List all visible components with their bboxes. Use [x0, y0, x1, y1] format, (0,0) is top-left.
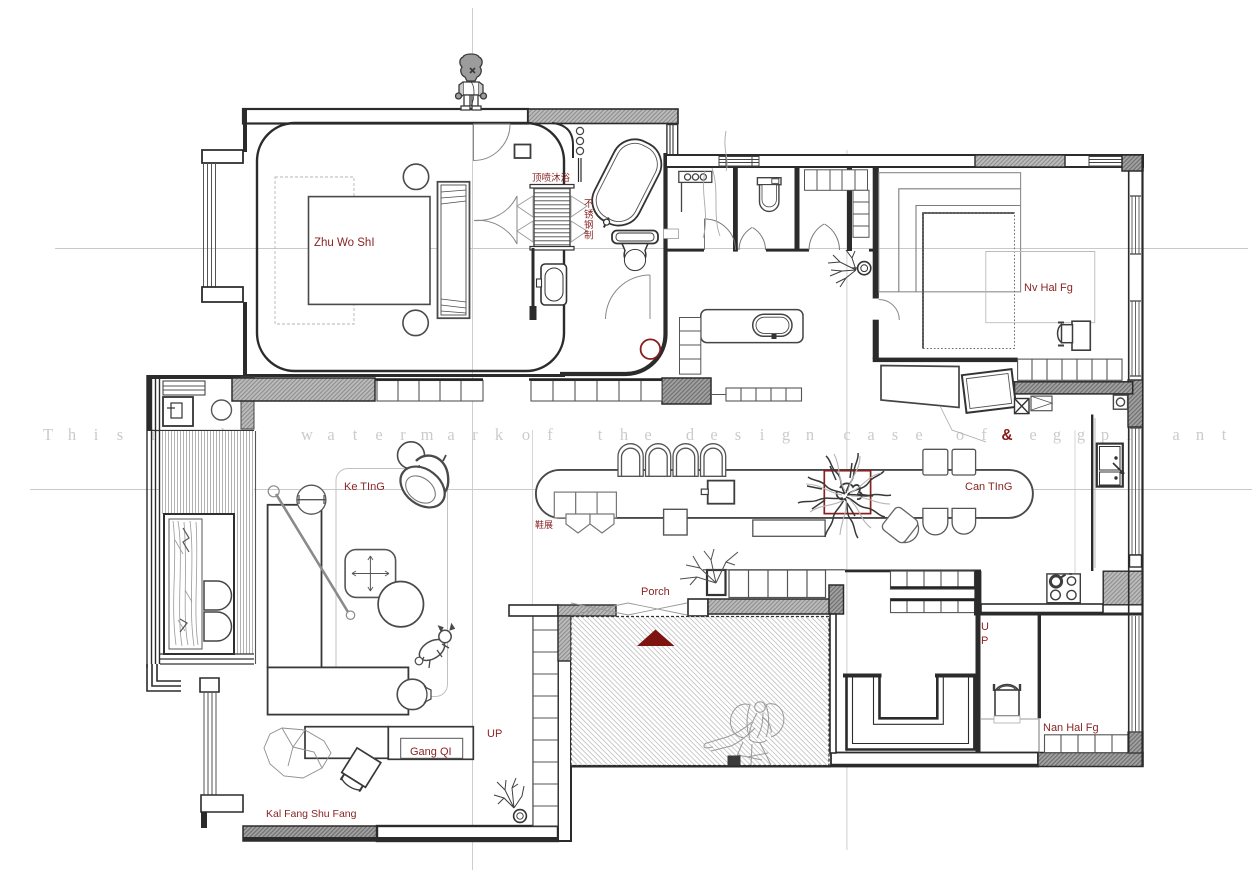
svg-text:&: &	[1001, 427, 1012, 444]
svg-text:a: a	[447, 425, 455, 444]
svg-text:Can TInG: Can TInG	[965, 481, 1013, 493]
svg-text:m: m	[421, 425, 434, 444]
svg-text:s: s	[892, 425, 898, 444]
svg-text:i: i	[760, 425, 765, 444]
svg-text:Porch: Porch	[641, 586, 670, 598]
svg-text:h: h	[68, 425, 77, 444]
svg-text:r: r	[472, 425, 478, 444]
svg-text:U: U	[981, 621, 989, 633]
svg-text:T: T	[43, 425, 53, 444]
svg-text:Gang QI: Gang QI	[410, 746, 452, 758]
svg-text:鞋展: 鞋展	[535, 519, 553, 530]
svg-text:不: 不	[584, 199, 594, 210]
svg-text:制: 制	[584, 230, 594, 242]
svg-text:t: t	[598, 425, 603, 444]
svg-text:w: w	[301, 425, 313, 444]
svg-text:s: s	[117, 425, 123, 444]
svg-text:i: i	[94, 425, 99, 444]
svg-text:锈: 锈	[584, 209, 594, 221]
svg-text:P: P	[981, 635, 988, 647]
svg-text:o: o	[956, 425, 964, 444]
svg-text:顶喷沐浴: 顶喷沐浴	[532, 172, 571, 184]
svg-text:Nv Hal Fg: Nv Hal Fg	[1024, 282, 1073, 294]
svg-text:g: g	[1077, 425, 1085, 444]
svg-text:f: f	[547, 425, 553, 444]
svg-text:k: k	[495, 425, 504, 444]
svg-text:e: e	[1029, 425, 1036, 444]
svg-text:Zhu Wo ShI: Zhu Wo ShI	[314, 237, 375, 249]
svg-text:o: o	[522, 425, 530, 444]
svg-text:h: h	[620, 425, 629, 444]
svg-text:g: g	[1053, 425, 1061, 444]
svg-text:e: e	[710, 425, 717, 444]
svg-text:Ke TInG: Ke TInG	[344, 481, 385, 493]
svg-text:a: a	[867, 425, 875, 444]
svg-text:e: e	[915, 425, 922, 444]
svg-text:e: e	[375, 425, 382, 444]
svg-text:钢: 钢	[584, 219, 594, 231]
svg-text:a: a	[1172, 425, 1180, 444]
svg-text:Nan Hal Fg: Nan Hal Fg	[1043, 722, 1099, 734]
svg-text:Kal Fang Shu Fang: Kal Fang Shu Fang	[266, 808, 357, 820]
svg-text:t: t	[1222, 425, 1227, 444]
svg-text:r: r	[400, 425, 406, 444]
svg-text:g: g	[782, 425, 790, 444]
svg-text:c: c	[843, 425, 850, 444]
svg-text:a: a	[327, 425, 335, 444]
svg-text:UP: UP	[487, 728, 502, 740]
svg-text:p: p	[1101, 425, 1109, 444]
svg-text:t: t	[353, 425, 358, 444]
svg-text:d: d	[686, 425, 695, 444]
svg-text:s: s	[735, 425, 741, 444]
svg-text:e: e	[644, 425, 651, 444]
svg-text:n: n	[806, 425, 814, 444]
svg-text:n: n	[1196, 425, 1204, 444]
